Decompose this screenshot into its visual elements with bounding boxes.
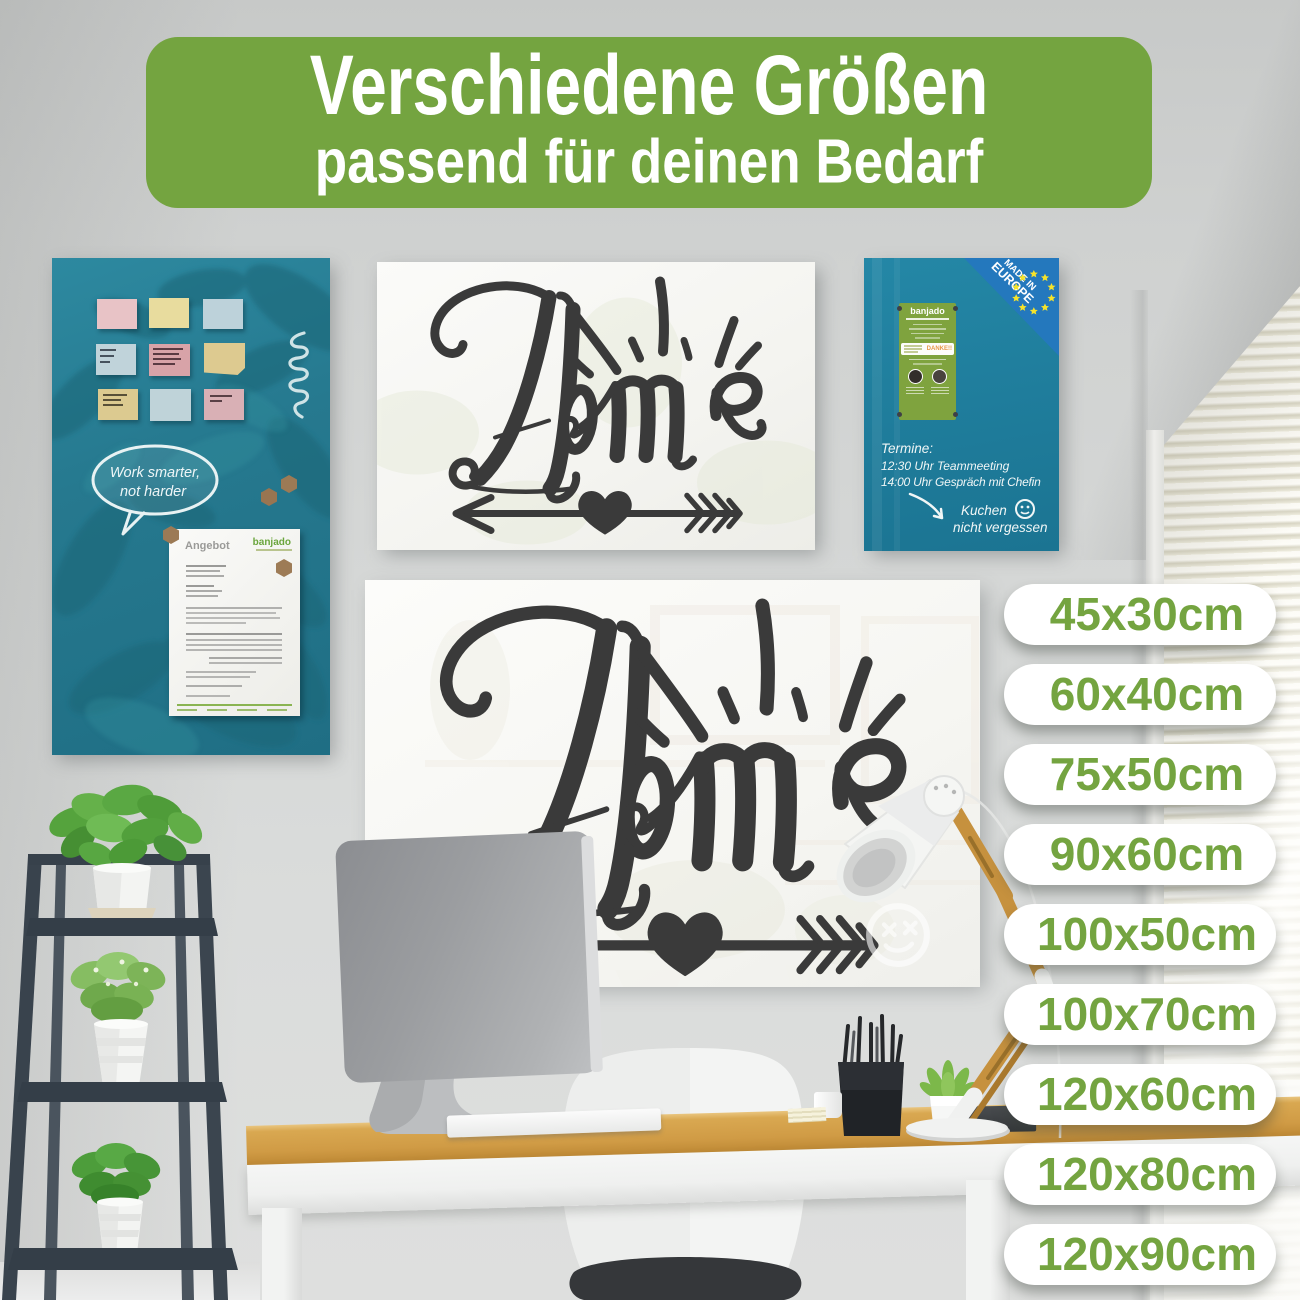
- svg-text:Work smarter,: Work smarter,: [110, 465, 200, 481]
- svg-text:not harder: not harder: [120, 484, 187, 500]
